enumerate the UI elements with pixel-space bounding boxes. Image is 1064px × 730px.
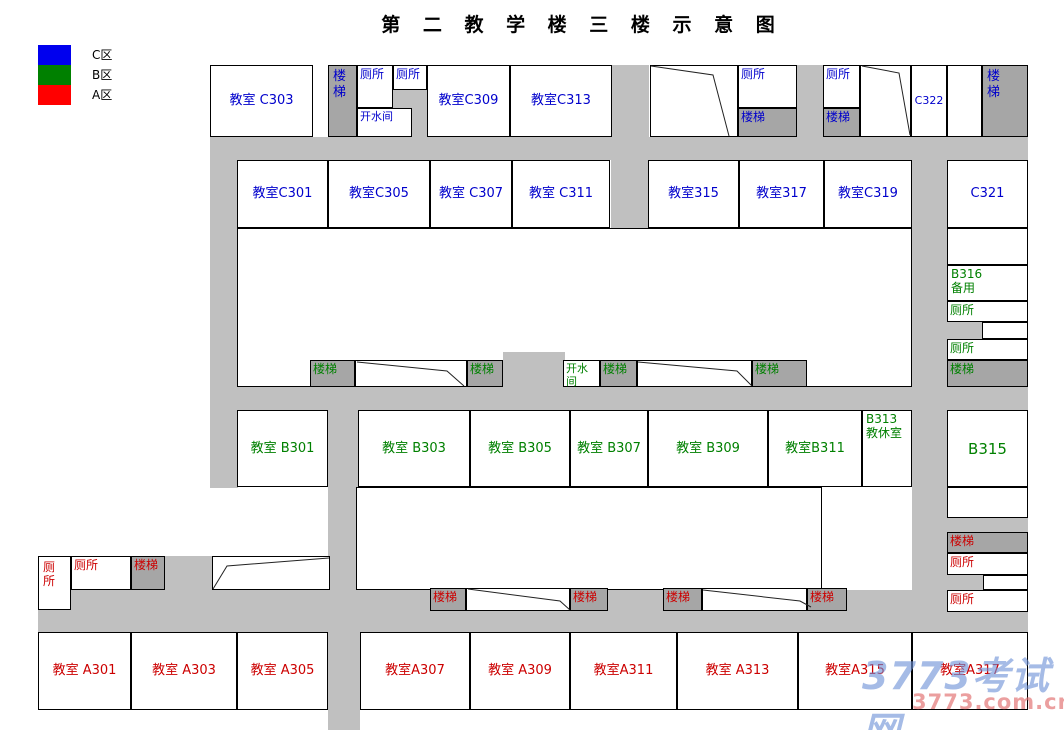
stair-top-2: 楼梯 (823, 108, 860, 137)
corridor (912, 137, 947, 632)
room-c321: C321 (947, 160, 1028, 228)
corridor (165, 556, 212, 590)
stair-mid-3: 楼梯 (600, 360, 637, 387)
room-b301: 教室 B301 (237, 410, 328, 487)
legend-zone-b-label: B区 (92, 65, 112, 85)
legend-zone-a: A区 (38, 85, 112, 105)
stair-mid-2: 楼梯 (467, 360, 503, 387)
corridor (210, 387, 1028, 410)
stair-top-1: 楼梯 (738, 108, 797, 137)
room-a305: 教室 A305 (237, 632, 328, 710)
room-315: 教室315 (648, 160, 739, 228)
watermark-line1: 3773考试网 (862, 645, 1064, 730)
stair-right-2: 楼梯 (947, 532, 1028, 553)
corridor (947, 575, 983, 590)
legend-zone-c: C区 (38, 45, 112, 65)
toilet-right-1: 厕所 (947, 301, 1028, 322)
room-c311: 教室 C311 (512, 160, 610, 228)
corridor (797, 65, 823, 137)
boiler-room-top: 开水间 (357, 108, 412, 137)
room-a311: 教室A311 (570, 632, 677, 710)
stair-mid-4: 楼梯 (752, 360, 807, 387)
stair-mid-1: 楼梯 (310, 360, 355, 387)
room-317: 教室317 (739, 160, 824, 228)
room-right-blank-1 (947, 228, 1028, 265)
room-c301: 教室C301 (237, 160, 328, 228)
stair-top-right: 楼 梯 (982, 65, 1028, 137)
floor-plan-canvas: 第 二 教 学 楼 三 楼 示 意 图 C区B区A区 教室 C303楼 梯厕所厕… (0, 0, 1064, 730)
stairwell-bottom-left (212, 556, 330, 590)
legend-zone-c-label: C区 (92, 45, 112, 65)
room-b315: B315 (947, 410, 1028, 487)
room-b313: B313 教休室 (862, 410, 912, 487)
toilet-right-2: 厕所 (947, 339, 1028, 360)
stairwell-mid-1 (355, 360, 467, 387)
stair-bottom-2: 楼梯 (570, 588, 608, 611)
toilet-top-1: 厕所 (357, 65, 393, 108)
stair-right-1: 楼梯 (947, 360, 1028, 387)
stairwell-top-1 (650, 65, 738, 137)
room-b309: 教室 B309 (648, 410, 768, 487)
room-b311: 教室B311 (768, 410, 862, 487)
toilet-bottom-left: 厕所 (71, 556, 131, 590)
corridor (611, 65, 649, 228)
watermark-line2: 3773.com.cn (912, 690, 1064, 714)
legend-zone-a-label: A区 (92, 85, 112, 105)
room-right-offset-1 (982, 322, 1028, 339)
corridor (947, 518, 1028, 532)
stair-bottom-left: 楼梯 (131, 556, 165, 590)
room-right-offset-2 (983, 575, 1028, 590)
corridor (393, 90, 412, 108)
room-a301: 教室 A301 (38, 632, 131, 710)
corridor (328, 408, 358, 632)
stairwell-mid-2 (637, 360, 752, 387)
toilet-right-3: 厕所 (947, 553, 1028, 575)
page-title: 第 二 教 学 楼 三 楼 示 意 图 (100, 10, 1064, 37)
toilet-top-4: 厕所 (823, 65, 860, 108)
legend-zone-b-swatch (38, 65, 71, 85)
room-c309: 教室C309 (427, 65, 510, 137)
room-c322: C322 (911, 65, 947, 137)
stairwell-top-2 (860, 65, 911, 137)
legend-zone-c-swatch (38, 45, 71, 65)
toilet-top-2: 厕所 (393, 65, 427, 90)
room-top-right-blank (947, 65, 982, 137)
corridor (947, 322, 982, 339)
room-c319: 教室C319 (824, 160, 912, 228)
stair-bottom-4: 楼梯 (807, 588, 847, 611)
stairwell-bottom-1 (466, 588, 570, 611)
room-c307: 教室 C307 (430, 160, 512, 228)
toilet-bottom-left-tall: 厕 所 (38, 556, 71, 610)
stair-top-left: 楼 梯 (328, 65, 357, 137)
boiler-room-mid: 开水间 (563, 360, 600, 387)
room-a313: 教室 A313 (677, 632, 798, 710)
room-c305: 教室C305 (328, 160, 430, 228)
room-a303: 教室 A303 (131, 632, 237, 710)
legend: C区B区A区 (38, 45, 112, 105)
room-right-blank-2 (947, 487, 1028, 518)
corridor (412, 90, 427, 137)
room-a307: 教室A307 (360, 632, 470, 710)
legend-zone-b: B区 (38, 65, 112, 85)
stair-bottom-1: 楼梯 (430, 588, 466, 611)
courtyard-lower (356, 487, 822, 590)
room-b303: 教室 B303 (358, 410, 470, 487)
stair-bottom-3: 楼梯 (663, 588, 702, 611)
corridor-notch-mid (503, 352, 565, 387)
room-b316: B316 备用 (947, 265, 1028, 301)
room-b307: 教室 B307 (570, 410, 648, 487)
room-a309: 教室 A309 (470, 632, 570, 710)
toilet-right-4: 厕所 (947, 590, 1028, 612)
room-b305: 教室 B305 (470, 410, 570, 487)
corridor (210, 137, 238, 488)
toilet-top-3: 厕所 (738, 65, 797, 108)
corridor (328, 632, 360, 730)
room-c303: 教室 C303 (210, 65, 313, 137)
stairwell-bottom-2 (702, 588, 807, 611)
room-c313: 教室C313 (510, 65, 612, 137)
legend-zone-a-swatch (38, 85, 71, 105)
